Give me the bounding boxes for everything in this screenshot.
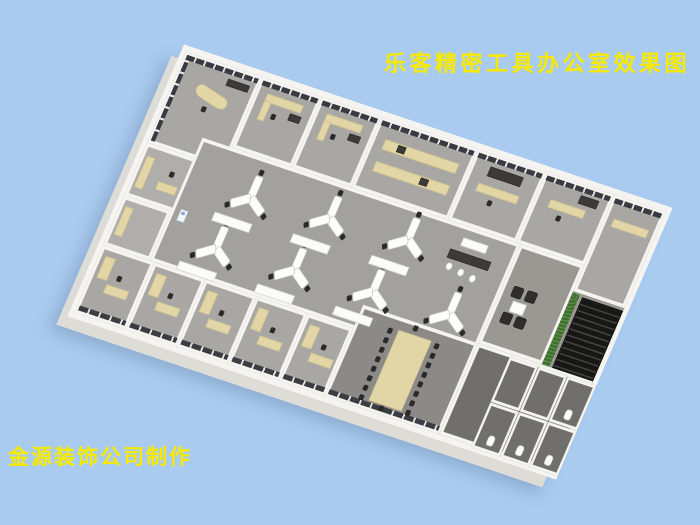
desk-arm: [352, 287, 373, 302]
office-chair: [270, 114, 277, 121]
office-desk: [103, 284, 130, 300]
window-band: [545, 175, 611, 201]
office-desk: [307, 353, 334, 369]
toilet: [514, 444, 525, 456]
desk-arm: [274, 265, 295, 280]
cabinet: [226, 79, 250, 93]
executive-desk: [193, 82, 230, 113]
side-desk: [155, 181, 178, 196]
desk-arm: [429, 309, 450, 324]
window-band: [151, 55, 192, 142]
storage-cabinet: [134, 156, 155, 190]
office-chair: [218, 310, 225, 317]
office-counter: [475, 183, 519, 205]
render-canvas: 乐客精密工具办公室效果图: [0, 0, 700, 525]
toilet: [563, 409, 574, 421]
office-chair: [486, 200, 493, 207]
office-chair: [555, 215, 562, 222]
toilet: [543, 454, 554, 466]
desk-arm: [195, 244, 216, 259]
office-chair: [320, 344, 327, 351]
glass-partition: [180, 340, 229, 360]
window-band: [185, 55, 259, 84]
office-desk: [256, 335, 283, 351]
glass-partition: [78, 305, 127, 325]
desk-arm: [388, 235, 409, 250]
image-title: 乐客精密工具办公室效果图: [384, 46, 690, 78]
floor-plan: [68, 45, 673, 480]
office-chair: [116, 276, 123, 283]
wardrobe-cabinet: [301, 324, 321, 349]
office-chair: [200, 106, 207, 113]
glass-partition: [231, 357, 280, 377]
office-chair: [329, 133, 336, 140]
glass-partition: [129, 323, 178, 343]
desk-arm: [309, 213, 330, 228]
credit-watermark: 金源装饰公司制作: [8, 441, 192, 471]
office-chair: [168, 171, 175, 178]
desk-arm: [230, 193, 251, 208]
office-desk: [154, 301, 181, 317]
office-chair: [167, 293, 174, 300]
wardrobe-cabinet: [199, 290, 219, 315]
storage-cabinet: [114, 206, 134, 237]
conference-table: [369, 330, 432, 412]
glass-partition: [282, 374, 325, 392]
toilet: [485, 435, 496, 447]
office-chair: [269, 327, 276, 334]
wardrobe-cabinet: [250, 307, 270, 332]
window-band: [614, 198, 663, 218]
office-desk: [205, 318, 232, 334]
wardrobe-cabinet: [148, 273, 168, 298]
cabinet: [287, 113, 301, 124]
office-counter: [610, 219, 649, 239]
cabinet: [347, 133, 361, 144]
wardrobe-cabinet: [96, 256, 116, 281]
